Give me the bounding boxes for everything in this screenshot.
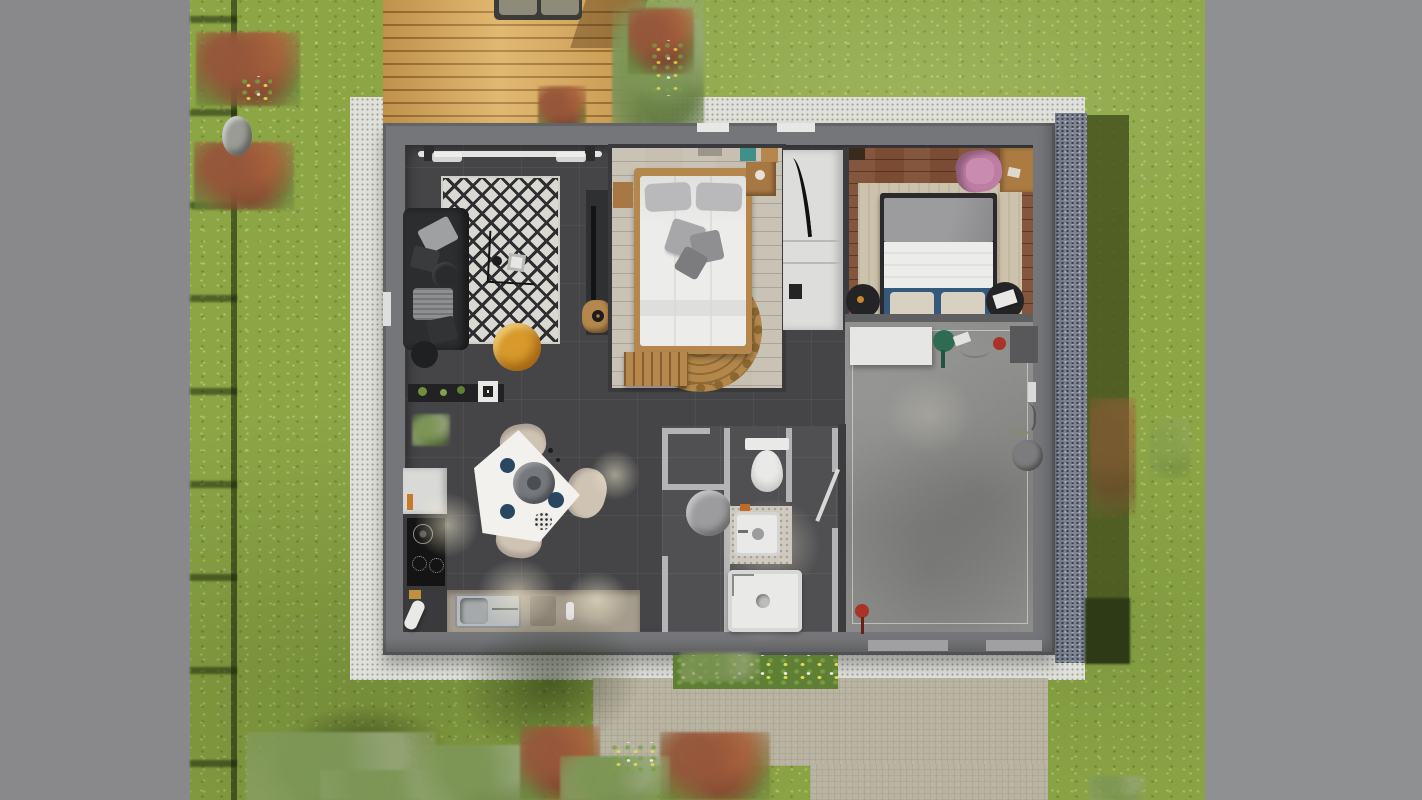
garage-door-marker (1028, 382, 1036, 402)
curtain-bracket (585, 146, 595, 161)
bath-wall (662, 428, 668, 490)
nightstand-lamp (755, 170, 765, 180)
outdoor-sofa-cushion (541, 0, 579, 15)
stone-path-lower (810, 764, 1048, 800)
round-side-table (686, 490, 732, 536)
wardrobe-drawer-line (783, 240, 843, 242)
bath-wall (832, 428, 838, 472)
garage-separator-wall (845, 314, 1033, 322)
sofa-throw (413, 288, 453, 320)
toilet-bowl (751, 450, 783, 492)
floor-plan-render (0, 0, 1422, 800)
navy-plate (500, 458, 515, 473)
table-candle (548, 448, 553, 453)
wardrobe-item (789, 284, 802, 299)
bed1-pillow (696, 182, 743, 212)
teal-wall-art (740, 148, 756, 161)
shrub (1150, 418, 1190, 478)
rock (222, 116, 252, 156)
red-valve (855, 604, 869, 618)
black-pouf (411, 341, 438, 368)
garage-cable (960, 342, 990, 358)
shrub (1090, 398, 1136, 518)
shelf-plant (418, 387, 427, 396)
wood-wall-box (761, 148, 778, 163)
garage-bucket (1012, 440, 1043, 471)
basin-faucet (738, 530, 748, 533)
door-marker (868, 640, 948, 651)
curtain (556, 152, 586, 162)
nightstand-candle (857, 296, 864, 303)
flower-bed-foliage (680, 652, 760, 682)
table-plate-deco (534, 512, 552, 530)
fence-rung (190, 16, 237, 23)
foot-bench (624, 352, 688, 386)
doormat (1010, 326, 1038, 363)
window-marker (777, 123, 815, 132)
window-marker (697, 123, 729, 132)
side-table-round (432, 262, 458, 288)
shelf-plant (440, 389, 447, 396)
fence-rung (190, 574, 237, 581)
flower-patch (238, 76, 272, 102)
shower-glass-corner (732, 574, 754, 596)
red-shrub (660, 732, 770, 800)
pink-chair-seat (966, 158, 994, 184)
lazy-susan-center (527, 476, 541, 490)
window-marker (383, 292, 391, 326)
nightstand (613, 182, 633, 208)
coffee-table-box (507, 253, 526, 272)
bed2-blanket-gray (884, 198, 993, 242)
table-spice (556, 458, 560, 462)
bedroom2-wall-item (849, 148, 865, 160)
side-band-left (0, 0, 190, 800)
counter-item-orange (409, 590, 421, 599)
fence-rung (190, 109, 237, 116)
light-pool (870, 360, 990, 470)
coffee-table-dish (492, 256, 502, 266)
watering-can (933, 330, 955, 352)
fence-rung (190, 667, 237, 674)
stool-decor (592, 310, 604, 322)
vanity-item-orange (740, 504, 750, 511)
garage-red-item (993, 337, 1006, 350)
drain-gravel-strip (1055, 113, 1087, 663)
wall-ledge (698, 148, 722, 156)
toilet-tank (745, 438, 789, 450)
shower-drain (756, 594, 770, 608)
shelf-picture-frame (478, 381, 498, 402)
hedge-shadow (1087, 115, 1129, 663)
wardrobe-drawer-line (783, 262, 843, 264)
navy-plate (500, 504, 515, 519)
yellow-pouf (493, 323, 541, 371)
red-valve-stem (861, 617, 864, 634)
navy-plate (548, 492, 564, 508)
shrub (1088, 776, 1146, 800)
fence-rung (190, 760, 237, 767)
flower-patch (608, 742, 660, 776)
bed2-duvet-white (884, 242, 993, 288)
garage-hose (1008, 402, 1036, 434)
bed1-runner (640, 300, 746, 316)
light-pool (580, 440, 650, 510)
fence-rung (190, 388, 237, 395)
fence-rung (190, 295, 237, 302)
basin-drain (752, 528, 764, 540)
shelf-plant (457, 386, 465, 394)
curtain (432, 152, 462, 162)
side-band-right (1205, 0, 1422, 800)
door-marker (986, 640, 1042, 651)
bath-wall (662, 428, 710, 434)
potted-plant (412, 414, 450, 446)
hedge-corner (1085, 598, 1130, 664)
bed1-pillow (644, 182, 691, 212)
fence-rung (190, 481, 237, 488)
outdoor-sofa-cushion (499, 0, 537, 15)
flower-patch (648, 40, 688, 96)
